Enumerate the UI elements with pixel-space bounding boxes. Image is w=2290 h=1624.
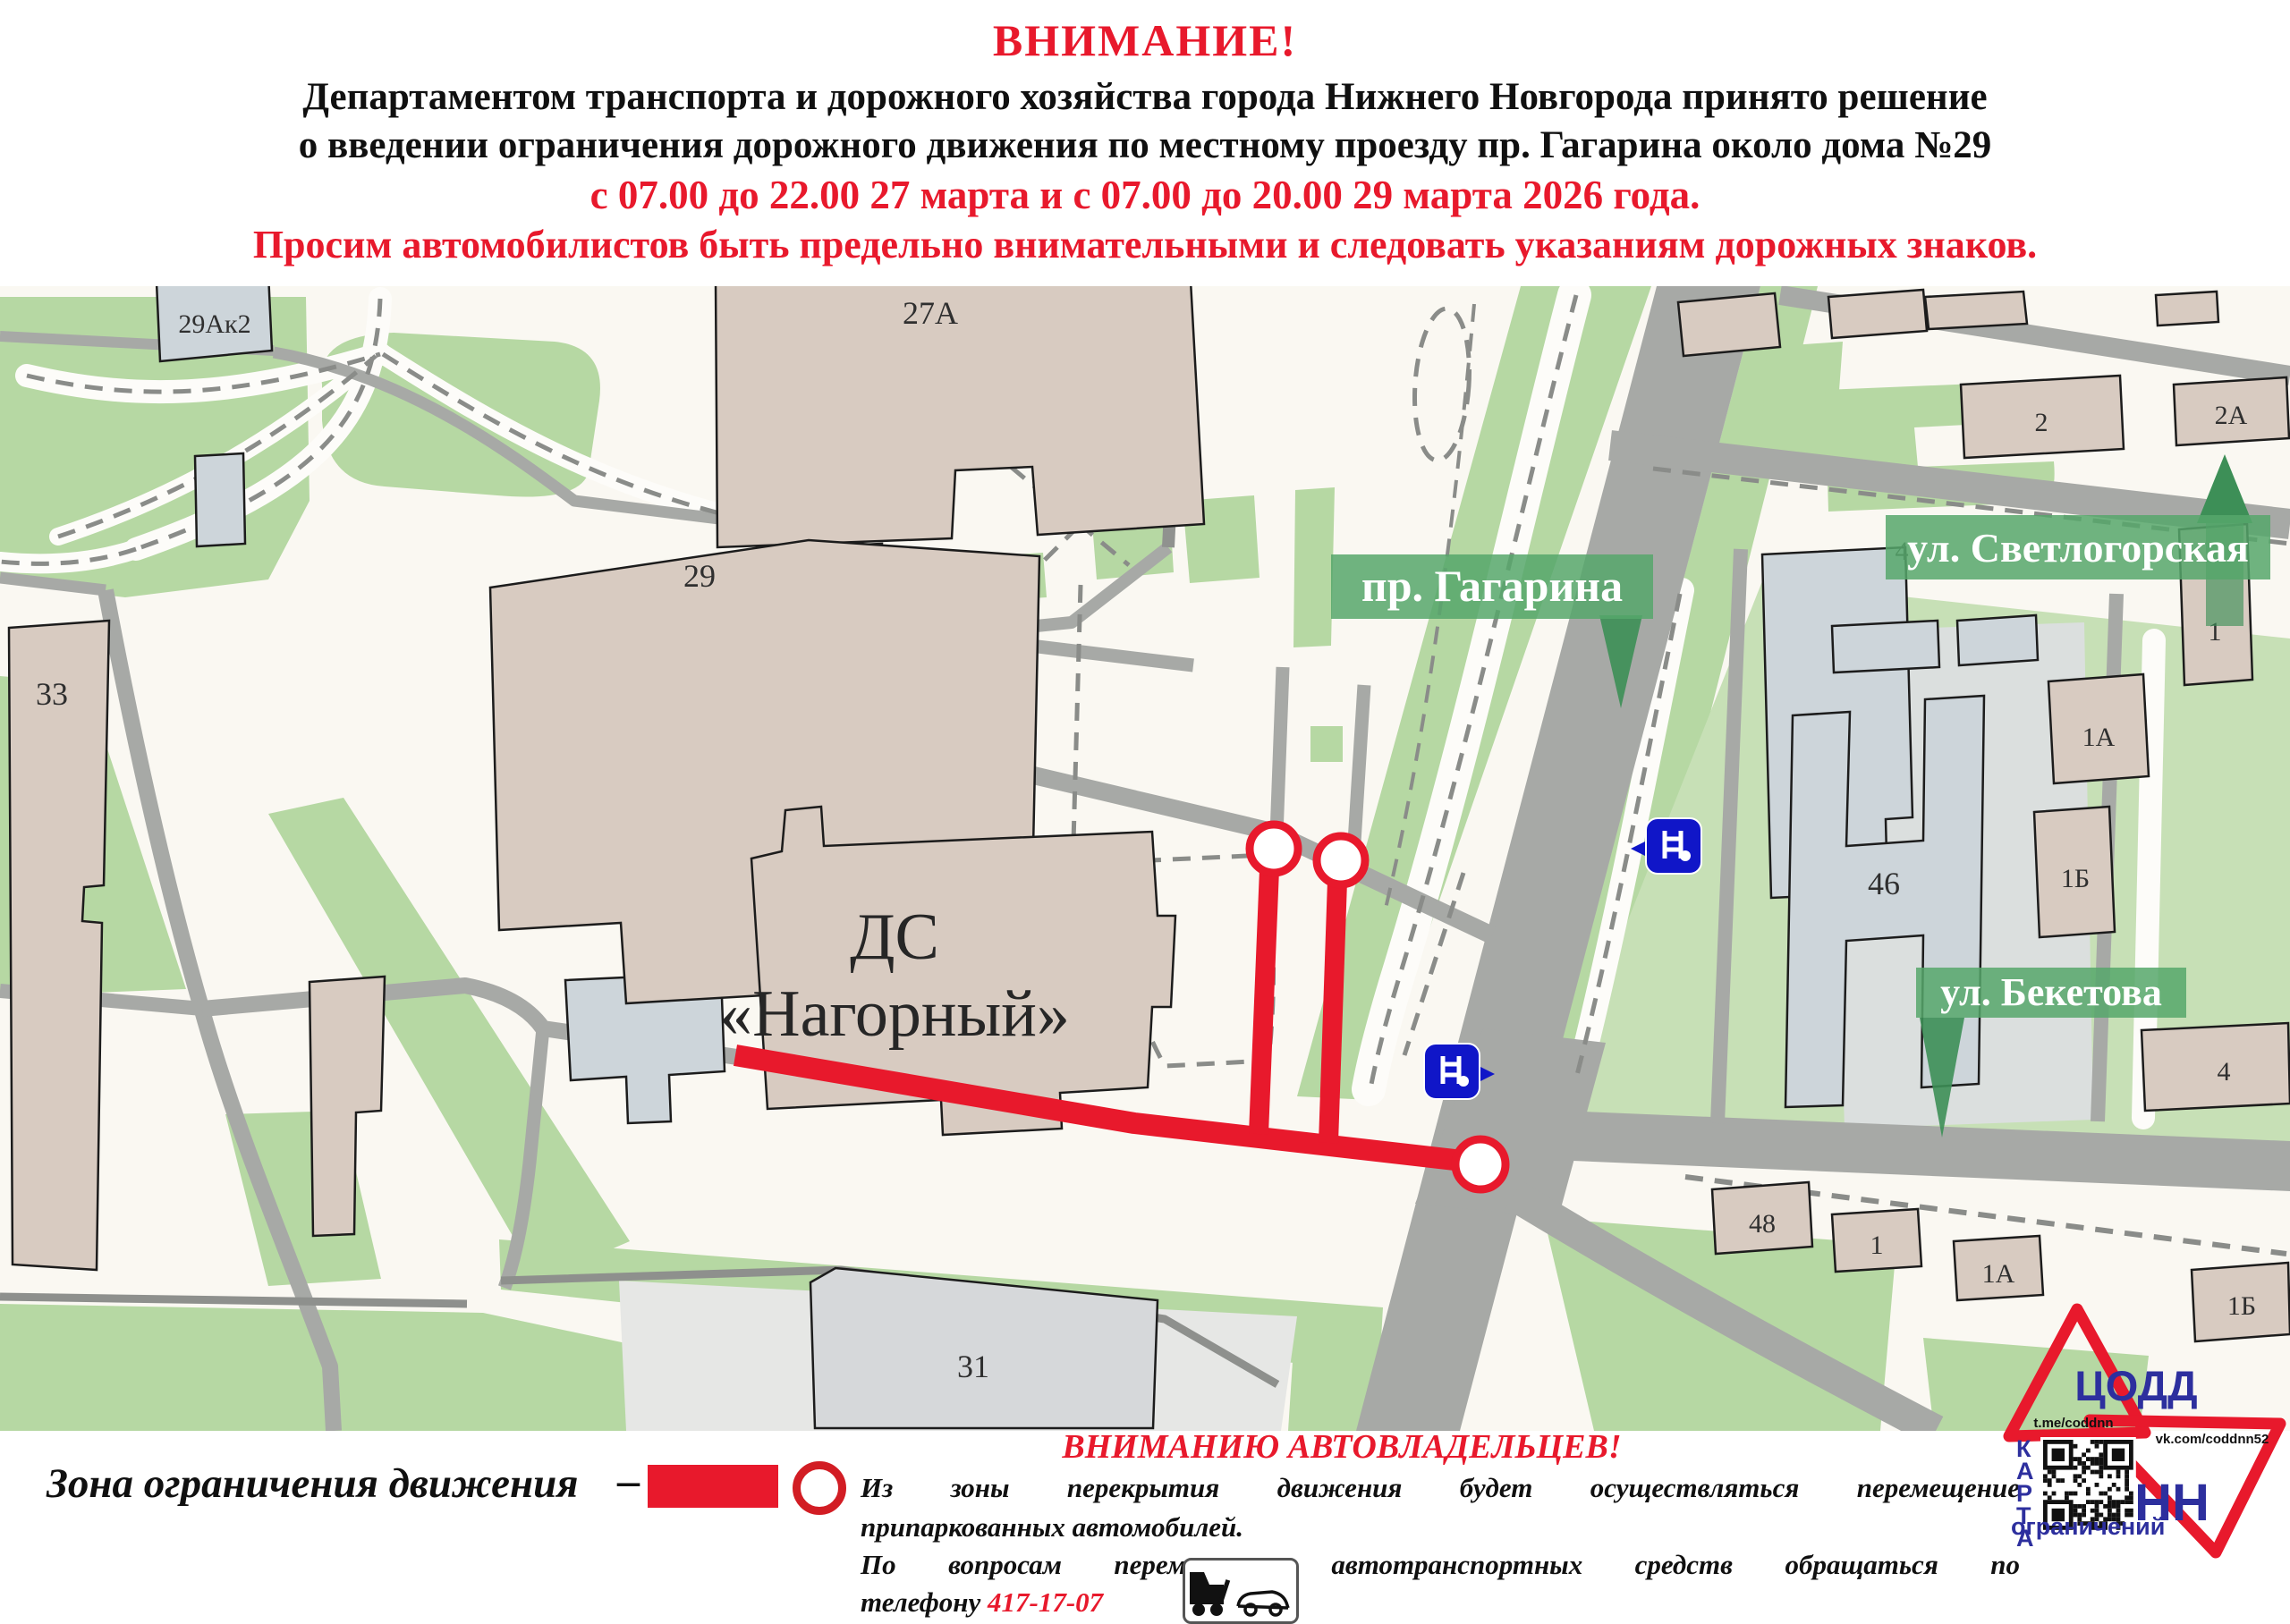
notice-line4: телефону 417-17-07 — [861, 1586, 1103, 1619]
notice-line3: По вопросам перемещения автотранспортных… — [861, 1549, 2020, 1581]
header-line1: Департаментом транспорта и дорожного хоз… — [0, 75, 2290, 119]
closure-point-icon-1 — [1250, 825, 1298, 873]
label-2a: 2А — [2215, 401, 2248, 430]
building-deco-2 — [1828, 290, 1927, 338]
notice-phone-number: 417-17-07 — [988, 1586, 1103, 1618]
gagarina-banner-label: пр. Гагарина — [1361, 561, 1623, 611]
label-1-row: 1 — [1870, 1231, 1884, 1260]
legend-red-line-swatch — [648, 1465, 778, 1508]
label-1a-mid: 1А — [2082, 723, 2116, 752]
restriction-line-drive2 — [1328, 881, 1337, 1143]
building-33 — [9, 621, 109, 1270]
building-roof-a — [1832, 621, 1939, 672]
header-line2: о введении ограничения дорожного движени… — [0, 123, 2290, 167]
label-4-right: 4 — [2218, 1057, 2231, 1087]
legend-closure-circle-icon — [793, 1461, 846, 1515]
beketova-banner-label: ул. Бекетова — [1940, 970, 2162, 1014]
tow-truck-icon — [1183, 1558, 1299, 1624]
poster-header: ВНИМАНИЕ! Департаментом транспорта и дор… — [0, 0, 2290, 288]
closure-point-icon-2 — [1317, 836, 1365, 884]
label-1a-row: 1А — [1982, 1259, 2015, 1289]
label-ds-line2: «Нагорный» — [719, 977, 1070, 1051]
label-2: 2 — [2035, 408, 2048, 437]
header-attention: ВНИМАНИЕ! — [0, 14, 2290, 66]
header-dates: с 07.00 до 22.00 27 марта и с 07.00 до 2… — [0, 172, 2290, 218]
notice-title: ВНИМАНИЮ АВТОВЛАДЕЛЬЦЕВ! — [895, 1427, 1789, 1467]
logo-telegram: t.me/coddnn — [2033, 1416, 2113, 1431]
closure-point-icon-3 — [1455, 1139, 1505, 1189]
restriction-line-drive1 — [1259, 869, 1269, 1134]
label-29: 29 — [683, 558, 716, 594]
svetlogorskaya-banner-label: ул. Светлогорская — [1907, 525, 2249, 571]
header-caution: Просим автомобилистов быть предельно вни… — [0, 222, 2290, 267]
building-deco-3 — [1925, 292, 2027, 329]
label-1b-mid: 1Б — [2061, 864, 2090, 893]
legend-label: Зона ограничения движения — [47, 1459, 578, 1508]
label-33: 33 — [36, 676, 68, 712]
logo-karta-bottom: ограничений — [2011, 1513, 2163, 1541]
legend-dash: – — [617, 1454, 640, 1506]
building-deco-4 — [2156, 292, 2218, 326]
city-map: 29Ак2 27А 29 33 31 2 2А 4 1 46 1А 1Б 4 4… — [0, 286, 2290, 1431]
building-4-right — [2142, 1023, 2290, 1111]
label-29ak2: 29Ак2 — [178, 309, 250, 339]
logo-org: ЦОДД — [2074, 1362, 2197, 1409]
label-46: 46 — [1868, 866, 1900, 901]
notice-phone-prefix: телефону — [861, 1586, 988, 1618]
label-48: 48 — [1749, 1209, 1776, 1239]
notice-line1: Из зоны перекрытия движения будет осущес… — [861, 1472, 2020, 1504]
building-deco-1 — [1678, 293, 1780, 356]
label-ds-line1: ДС — [850, 901, 939, 974]
building-small-gray — [195, 453, 245, 546]
building-roof-b — [1957, 615, 2038, 665]
logo-vk: vk.com/coddnn52 — [2156, 1432, 2269, 1447]
label-31: 31 — [957, 1349, 989, 1384]
notice-line2: припаркованных автомобилей. — [861, 1511, 2020, 1544]
label-27a: 27А — [903, 295, 958, 331]
